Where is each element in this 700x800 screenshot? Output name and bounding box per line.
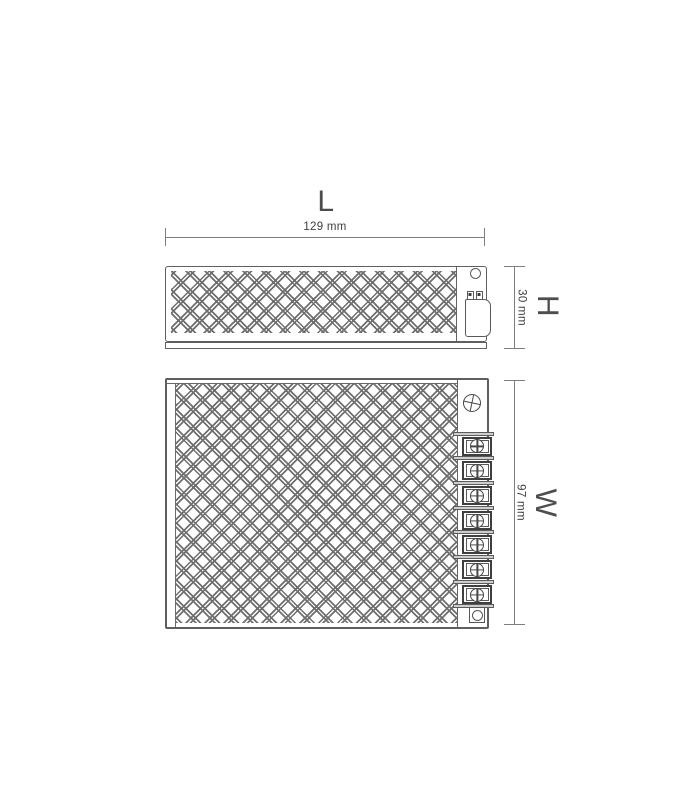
terminal-block (462, 585, 492, 604)
side-view-body (165, 266, 487, 342)
terminal-block (462, 535, 492, 554)
length-value: 129 mm (165, 221, 485, 234)
side-view-separator-line (456, 267, 457, 341)
terminal-divider-bar (453, 580, 494, 584)
terminal-divider-bar (453, 456, 494, 460)
front-view-mesh-pattern (176, 384, 457, 623)
terminal-block (462, 437, 492, 456)
height-value: 30 mm (515, 278, 528, 338)
length-tick-right (484, 228, 485, 246)
length-letter: L (306, 186, 346, 218)
terminal-divider-bar (453, 506, 494, 510)
height-tick-top (504, 266, 525, 267)
width-tick-top (504, 380, 525, 381)
width-value: 97 mm (514, 472, 527, 532)
width-tick-bottom (504, 624, 525, 625)
front-view-separator-line (457, 380, 458, 627)
corner-hole-box (469, 607, 485, 623)
dimension-diagram: L 129 mm 30 mm H 97 mm W (0, 0, 700, 800)
terminal-block (462, 511, 492, 530)
width-letter: W (529, 483, 561, 523)
panel-screw-icon (461, 392, 482, 413)
terminal-divider-bar (453, 555, 494, 559)
corner-hole-icon (472, 610, 483, 621)
front-view-body (165, 378, 489, 629)
terminal-block (462, 486, 492, 505)
terminal-block (462, 560, 492, 579)
length-dimension-line (165, 237, 485, 238)
height-letter: H (531, 286, 563, 326)
mounting-hole-icon (470, 268, 482, 280)
side-view-mesh-pattern (171, 271, 456, 334)
terminal-screw-icon (470, 514, 484, 528)
length-tick-left (165, 228, 166, 246)
side-view-mounting-flange (165, 342, 487, 349)
terminal-divider-bar (453, 481, 494, 485)
height-tick-bottom (504, 348, 525, 349)
terminal-divider-bar (453, 530, 494, 534)
terminal-divider-bar (453, 432, 494, 436)
terminal-screw-icon (470, 588, 484, 602)
terminal-block (462, 461, 492, 480)
connector-block (465, 299, 491, 337)
